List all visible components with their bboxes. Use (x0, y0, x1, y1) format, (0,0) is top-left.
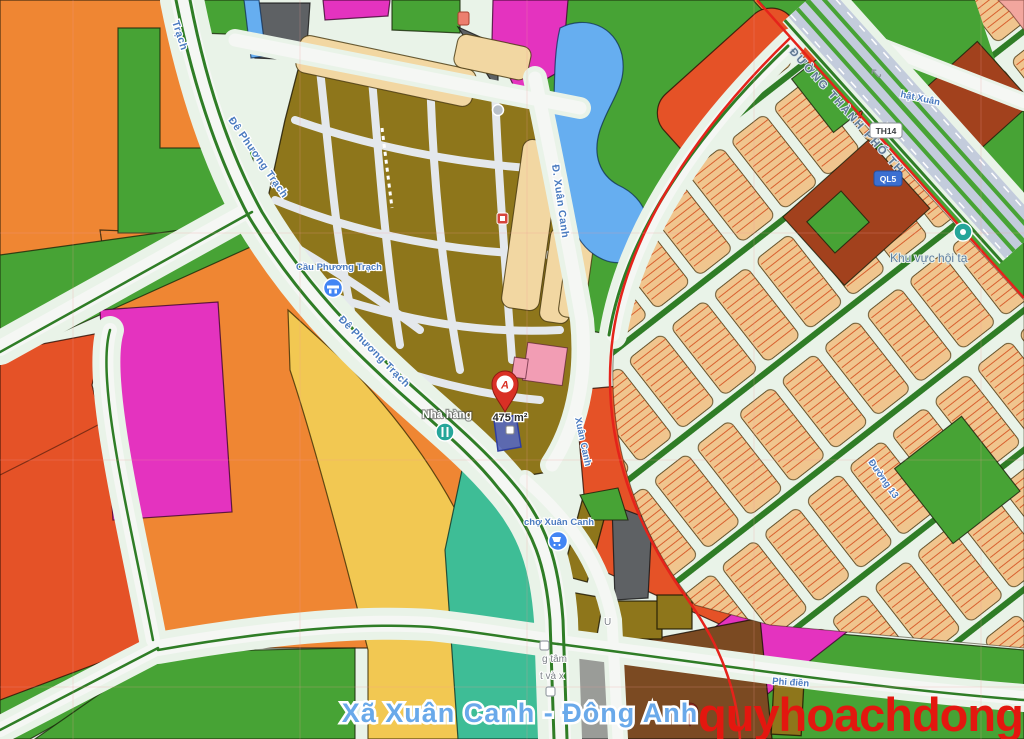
parcel-area-label: 475 m² (493, 412, 528, 424)
route-shield-ql5: QL5 (874, 171, 902, 186)
market-icon[interactable] (549, 532, 568, 551)
market-label: chợ Xuân Canh (524, 517, 594, 528)
roundabout-icon (493, 105, 504, 116)
bridge-label: Cầu Phương Trạch (296, 262, 382, 273)
watermark: quyhoachdonganh.com (698, 688, 1024, 739)
partial-label-g-tam: g tâm (542, 654, 567, 665)
bridge-icon[interactable] (324, 279, 343, 298)
route-shield-th14: TH14 (870, 123, 902, 138)
pink-building (523, 342, 568, 385)
poi-icon-red-center (500, 216, 505, 221)
svg-text:QL5: QL5 (880, 174, 897, 184)
transit-stop-icon[interactable] (540, 641, 549, 650)
zoning-map[interactable]: Trạch Đê Phương Trạch Đê Phương Trạch Đ.… (0, 0, 1024, 739)
poi-icon-salmon[interactable] (458, 12, 469, 25)
zone-magenta (323, 0, 390, 20)
zone-green (392, 0, 460, 33)
khu-vuc-label: Khu vực hội tạ (890, 251, 968, 265)
town-label: Xã Xuân Canh - Đông Anh (342, 698, 699, 728)
parcel-info-icon[interactable] (506, 426, 514, 434)
restaurant-icon[interactable] (436, 423, 454, 441)
partial-label-t-va-x: t và x (540, 671, 564, 682)
zone-olive (617, 601, 662, 639)
restaurant-label: Nhà hàng (422, 409, 472, 421)
map-canvas[interactable]: Trạch Đê Phương Trạch Đê Phương Trạch Đ.… (0, 0, 1024, 739)
partial-label-u: U (604, 617, 611, 628)
marker-letter: A (500, 380, 509, 392)
place-icon-dot (960, 229, 966, 235)
svg-text:TH14: TH14 (876, 126, 897, 136)
transit-stop-icon[interactable] (546, 687, 555, 696)
